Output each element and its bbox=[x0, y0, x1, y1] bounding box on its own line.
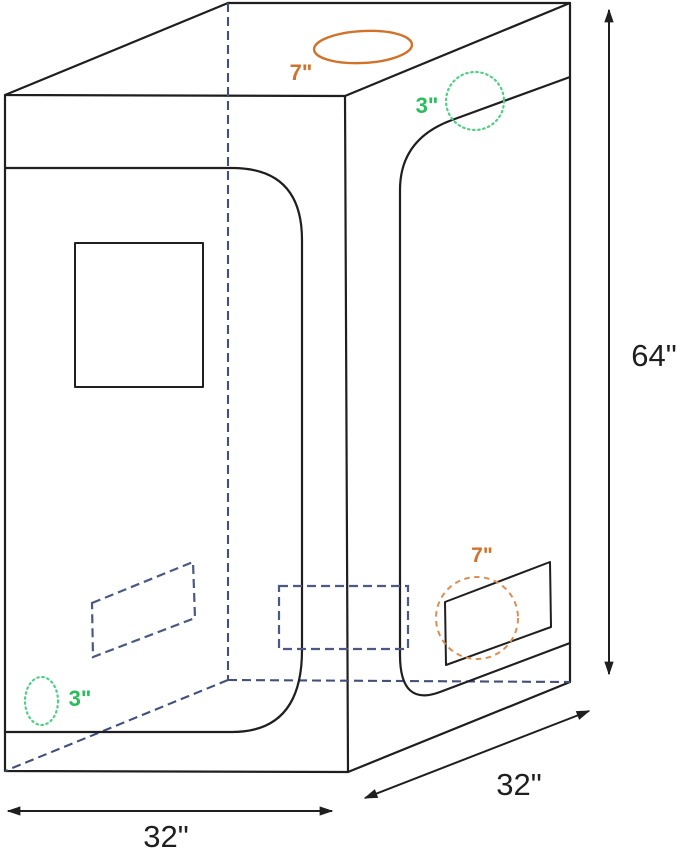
tent-dimension-diagram: 7" 3" 7" 3" 64" 32" 32" bbox=[0, 0, 679, 851]
hidden-bottom-right-edge bbox=[228, 680, 570, 682]
width-label: 32" bbox=[143, 819, 189, 851]
hidden-bottom-left-edge bbox=[5, 680, 228, 771]
diagram-canvas: 7" 3" 7" 3" 64" 32" 32" bbox=[0, 0, 679, 851]
left-door-outline bbox=[5, 168, 302, 732]
top-vent-label: 3" bbox=[416, 93, 439, 118]
left-window bbox=[75, 243, 203, 387]
top-duct-ellipse bbox=[313, 28, 413, 65]
front-vent-dashed bbox=[279, 586, 408, 649]
depth-arrow bbox=[365, 711, 589, 798]
side-duct-window bbox=[445, 562, 551, 665]
right-door-outline bbox=[400, 77, 570, 695]
bottom-vent-label: 3" bbox=[69, 686, 92, 711]
side-duct-label: 7" bbox=[471, 544, 493, 567]
tent-left-face bbox=[5, 95, 348, 772]
height-label: 64" bbox=[631, 338, 677, 373]
left-vent-flap-dashed bbox=[92, 562, 195, 657]
top-duct-label: 7" bbox=[290, 60, 313, 85]
depth-label: 32" bbox=[496, 767, 542, 802]
bottom-vent-ellipse bbox=[25, 677, 58, 725]
top-vent-circle bbox=[446, 72, 504, 130]
tent-top-face bbox=[5, 3, 570, 96]
